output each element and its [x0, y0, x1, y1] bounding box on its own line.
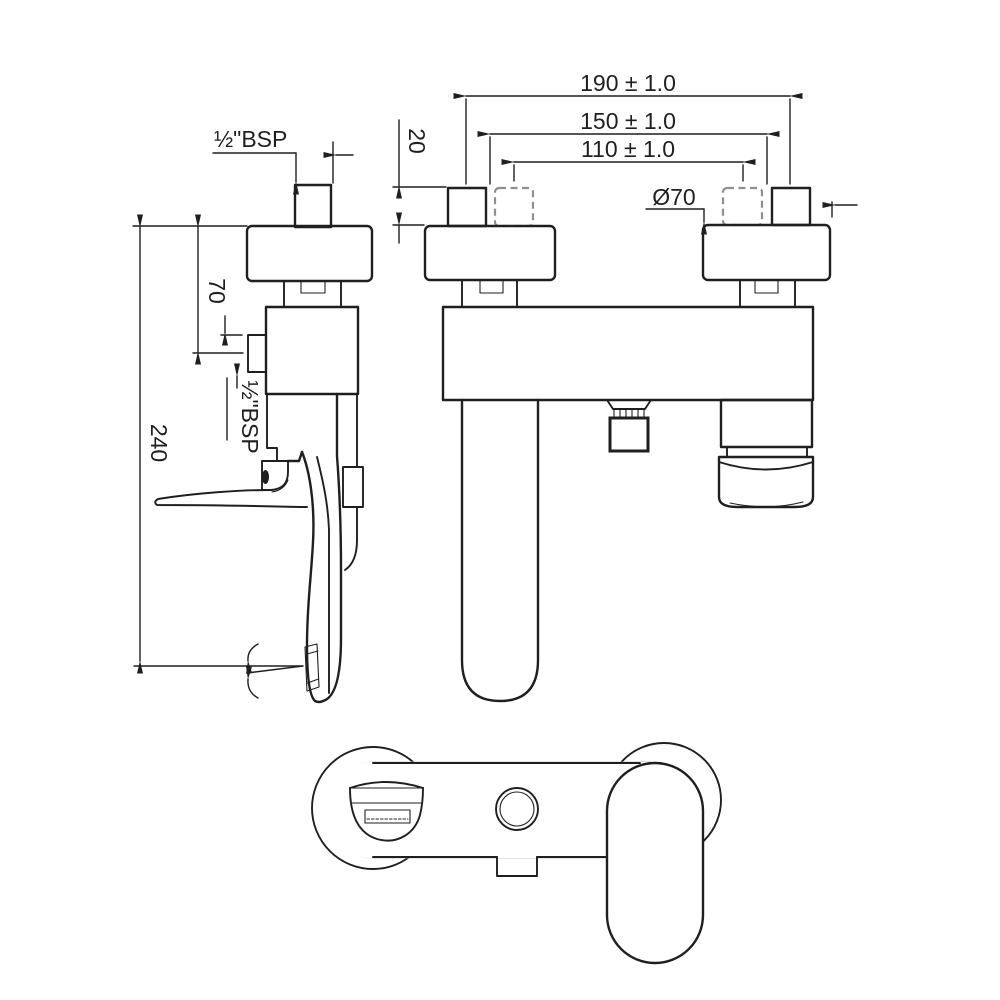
dim-label-20: 20 [404, 128, 430, 154]
dim-label-bsp-side: ½"BSP [237, 380, 263, 453]
dim-label-dia70: Ø70 [652, 184, 695, 210]
dim-label-190: 190 ± 1.0 [580, 70, 676, 96]
technical-drawing-page: 190 ± 1.0 150 ± 1.0 110 ± 1.0 20 Ø70 [0, 0, 1000, 1000]
dim-label-110: 110 ± 1.0 [581, 136, 675, 162]
dim-label-70: 70 [204, 278, 230, 304]
plan-handle [607, 763, 703, 963]
dim-label-150: 150 ± 1.0 [580, 108, 676, 134]
side-pivot-screw [262, 470, 269, 484]
dim-label-bsp-top: ½"BSP [214, 126, 287, 152]
mixer-drawing-svg: 190 ± 1.0 150 ± 1.0 110 ± 1.0 20 Ø70 [0, 0, 1000, 1000]
dim-label-240: 240 [146, 424, 172, 462]
